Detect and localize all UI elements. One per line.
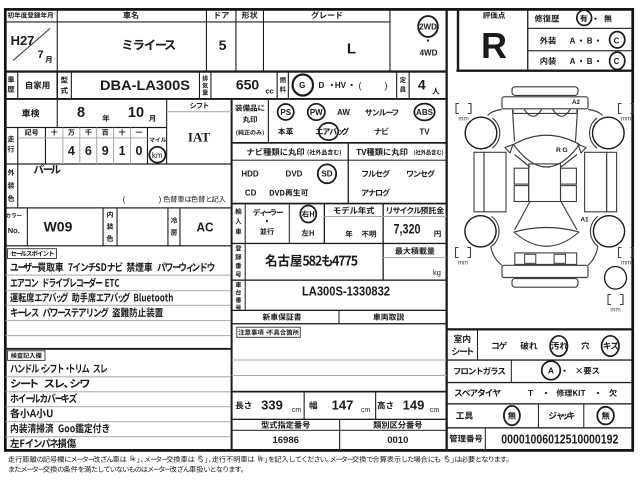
- svg-text:650: 650: [236, 77, 260, 93]
- svg-text:8: 8: [77, 105, 85, 121]
- svg-text:T: T: [528, 388, 534, 398]
- svg-text:149: 149: [403, 398, 425, 413]
- svg-text:1: 1: [119, 144, 126, 158]
- svg-text:A: A: [570, 37, 576, 46]
- svg-text:4: 4: [68, 144, 75, 158]
- svg-text:G: G: [299, 81, 305, 90]
- svg-text:0010: 0010: [387, 435, 408, 446]
- svg-text:7,320: 7,320: [394, 222, 421, 237]
- svg-text:mm: mm: [610, 307, 620, 314]
- svg-text:(: (: [359, 81, 362, 91]
- svg-text:R: R: [481, 25, 507, 66]
- svg-text:L: L: [347, 40, 356, 57]
- svg-text:TV: TV: [419, 127, 430, 136]
- svg-text:0: 0: [136, 144, 143, 158]
- svg-text:SD: SD: [321, 170, 332, 179]
- svg-text:LA300S-1330832: LA300S-1330832: [302, 284, 390, 299]
- svg-text:A2: A2: [572, 99, 581, 106]
- svg-text:C: C: [614, 57, 620, 66]
- svg-text:147: 147: [332, 398, 354, 413]
- svg-text:): ): [385, 81, 388, 91]
- svg-text:AC: AC: [197, 219, 215, 234]
- svg-text:RG: RG: [556, 147, 569, 154]
- svg-text:No.: No.: [8, 226, 20, 235]
- svg-text:ABS: ABS: [416, 108, 434, 117]
- svg-text:6: 6: [85, 144, 92, 158]
- svg-text:A: A: [570, 57, 576, 66]
- svg-text:A: A: [548, 366, 554, 376]
- svg-text:mm: mm: [458, 116, 468, 123]
- svg-text:): ): [159, 195, 162, 204]
- svg-text:cm: cm: [361, 407, 371, 414]
- svg-text:D: D: [319, 81, 325, 90]
- svg-text:339: 339: [261, 398, 283, 413]
- svg-text:kg: kg: [433, 268, 441, 277]
- svg-text:mm: mm: [458, 260, 468, 267]
- svg-text:km: km: [152, 151, 163, 160]
- svg-text:HDD: HDD: [241, 170, 259, 179]
- svg-text:IAT: IAT: [188, 130, 210, 145]
- svg-text:A1: A1: [580, 216, 589, 223]
- svg-text:10: 10: [128, 105, 144, 121]
- svg-text:16986: 16986: [272, 435, 298, 446]
- svg-text:9: 9: [102, 144, 109, 158]
- svg-text:W09: W09: [44, 219, 73, 235]
- svg-text:DBA-LA300S: DBA-LA300S: [100, 77, 190, 93]
- svg-text:PW: PW: [310, 108, 323, 117]
- svg-text:B: B: [587, 57, 593, 66]
- svg-text:cm: cm: [292, 407, 302, 414]
- svg-text:HV: HV: [335, 81, 347, 90]
- svg-text:mm: mm: [621, 260, 631, 267]
- svg-text:PS: PS: [280, 108, 291, 117]
- svg-text:DVD: DVD: [286, 170, 303, 179]
- svg-text:cm: cm: [430, 407, 440, 414]
- svg-text:CD: CD: [245, 189, 257, 198]
- svg-text:00001006012510000192: 00001006012510000192: [501, 432, 618, 446]
- svg-text:4: 4: [418, 76, 426, 92]
- svg-text:7: 7: [37, 49, 43, 61]
- svg-text:AW: AW: [337, 108, 350, 117]
- svg-text:B: B: [587, 37, 593, 46]
- svg-text:2WD: 2WD: [419, 22, 437, 31]
- svg-text:cc: cc: [265, 87, 273, 96]
- svg-text:mm: mm: [621, 116, 631, 123]
- svg-text:H27: H27: [11, 33, 35, 48]
- svg-text:(: (: [123, 195, 126, 204]
- svg-text:4WD: 4WD: [420, 48, 438, 57]
- svg-text:5: 5: [219, 37, 227, 53]
- svg-text:C: C: [614, 37, 620, 46]
